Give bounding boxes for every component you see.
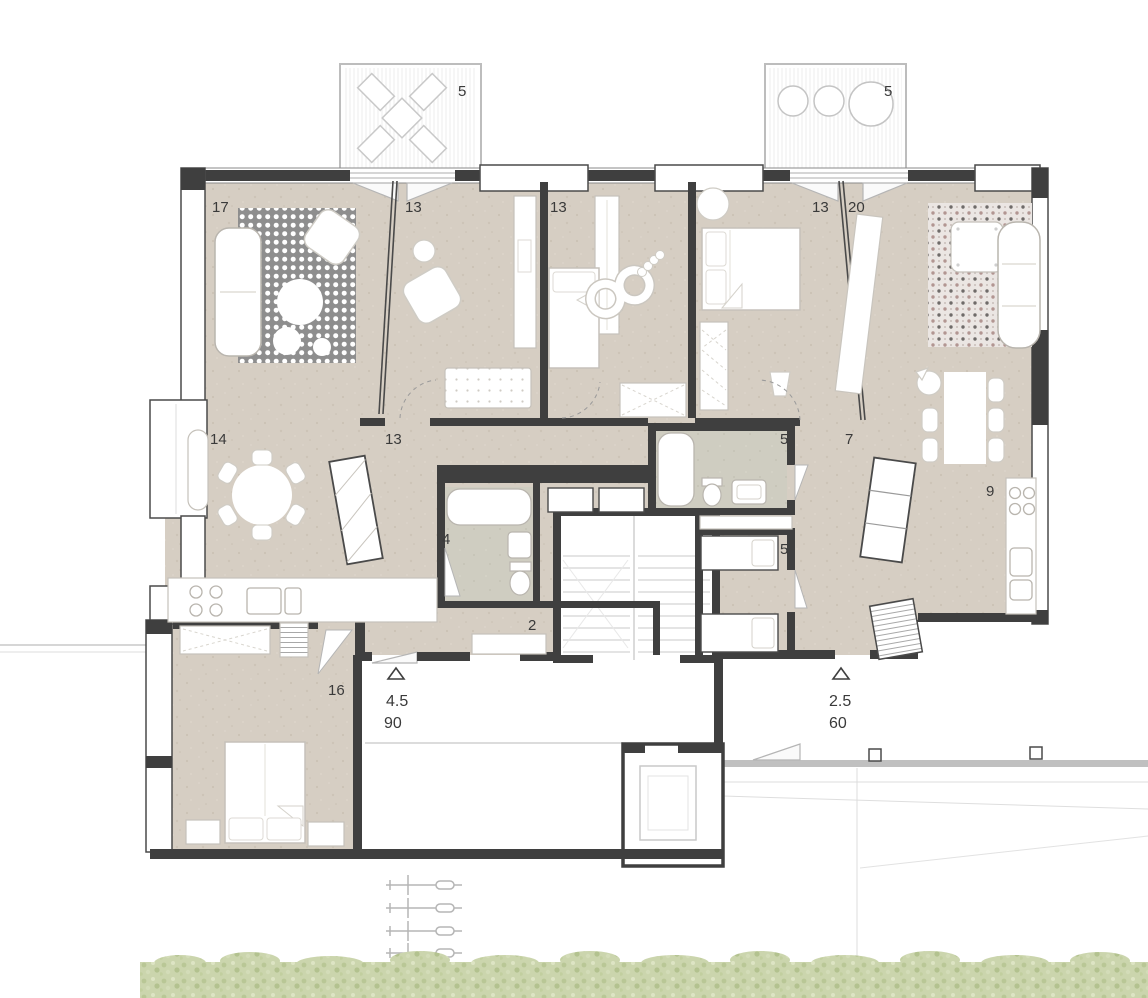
label-corridor-7: 7 bbox=[845, 431, 853, 448]
pillow bbox=[267, 818, 301, 840]
shelf-bench bbox=[700, 516, 792, 529]
label-kitchen-9: 9 bbox=[986, 483, 994, 500]
elevator bbox=[623, 744, 723, 866]
walkway-post bbox=[869, 749, 881, 761]
label-storage-5: 5 bbox=[780, 541, 788, 558]
label-bedroom-16: 16 bbox=[328, 682, 345, 699]
floor-plan-canvas: 5 5 17 13 13 13 20 14 13 4 2 5 7 5 9 16 … bbox=[0, 0, 1148, 998]
exterior-walkway bbox=[723, 760, 1148, 767]
window bbox=[480, 165, 588, 191]
pillow bbox=[706, 270, 726, 304]
balcony-left bbox=[340, 64, 481, 170]
label-corridor-13: 13 bbox=[385, 431, 402, 448]
bathtub bbox=[658, 433, 694, 506]
entrance-ramp bbox=[753, 744, 800, 760]
label-bathroom-4: 4 bbox=[442, 531, 450, 548]
label-bathroom-5: 5 bbox=[780, 431, 788, 448]
bicycle-icon bbox=[386, 875, 462, 895]
chest bbox=[620, 383, 686, 417]
hedge bbox=[140, 951, 1148, 998]
label-balcony-right: 5 bbox=[884, 83, 892, 100]
sink bbox=[1010, 548, 1032, 576]
stool-round bbox=[313, 338, 331, 356]
dim-left-line2: 90 bbox=[384, 715, 402, 732]
pillow bbox=[229, 818, 263, 840]
balcony-right bbox=[765, 64, 906, 170]
coffee-table-round bbox=[277, 279, 323, 325]
pouf-round bbox=[697, 188, 729, 220]
round-table bbox=[232, 465, 292, 525]
label-bedroom-13c: 13 bbox=[812, 199, 829, 216]
kitchen-counter bbox=[1006, 478, 1036, 614]
doormat bbox=[472, 634, 546, 654]
stairwell bbox=[553, 508, 720, 663]
dim-right-line1: 2.5 bbox=[829, 693, 851, 710]
label-living-20: 20 bbox=[848, 199, 865, 216]
window bbox=[655, 165, 763, 191]
room-living-17 bbox=[215, 206, 363, 363]
bench bbox=[188, 430, 208, 510]
toilet bbox=[510, 562, 531, 595]
bathtub bbox=[447, 489, 531, 525]
sofa-curved bbox=[998, 222, 1040, 348]
pillow bbox=[706, 232, 726, 266]
label-living-17: 17 bbox=[212, 199, 229, 216]
label-bedroom-13a: 13 bbox=[405, 199, 422, 216]
bench-mat bbox=[445, 368, 531, 408]
nightstand bbox=[308, 822, 344, 846]
bicycle-icon bbox=[386, 921, 462, 941]
wardrobe-hatched bbox=[700, 322, 728, 410]
cabinet-striped bbox=[280, 623, 308, 657]
sideboard-striped bbox=[870, 599, 923, 660]
bathroom-4 bbox=[445, 487, 533, 601]
label-balcony-left: 5 bbox=[458, 83, 466, 100]
bicycle-icon bbox=[386, 898, 462, 918]
bicycle-rack bbox=[386, 875, 462, 963]
dim-left-line1: 4.5 bbox=[386, 693, 408, 710]
entry-2 bbox=[472, 634, 546, 654]
label-entry-2: 2 bbox=[528, 617, 536, 634]
label-bedroom-13b: 13 bbox=[550, 199, 567, 216]
dining-table bbox=[944, 372, 986, 464]
label-dining-14: 14 bbox=[210, 431, 227, 448]
basket bbox=[770, 372, 790, 396]
washbasin bbox=[508, 532, 531, 558]
toilet bbox=[702, 478, 722, 506]
stool-round bbox=[413, 240, 435, 262]
walkway-post bbox=[1030, 747, 1042, 759]
dim-right-line2: 60 bbox=[829, 715, 847, 732]
window bbox=[975, 165, 1040, 191]
side-table-round bbox=[273, 327, 301, 355]
sink bbox=[247, 588, 281, 614]
kitchen-counter-left bbox=[168, 578, 437, 622]
nightstand bbox=[186, 820, 220, 844]
